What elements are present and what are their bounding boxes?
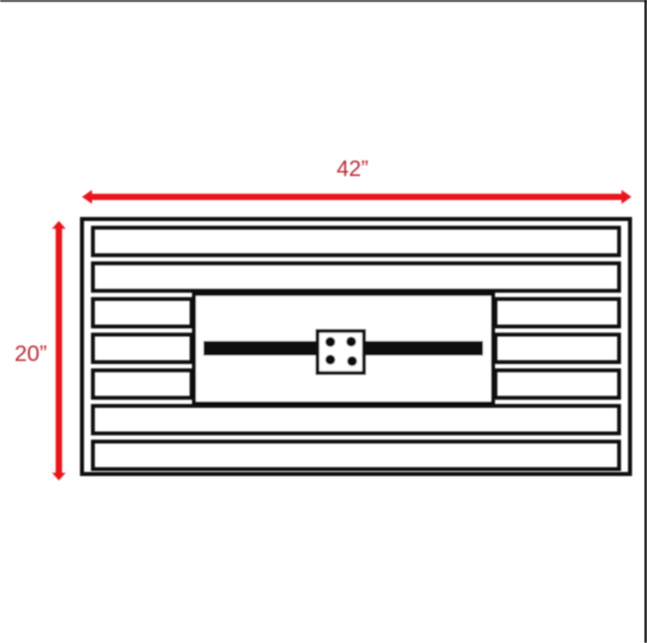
- svg-text:42”: 42”: [337, 156, 369, 181]
- svg-text:20”: 20”: [15, 341, 48, 366]
